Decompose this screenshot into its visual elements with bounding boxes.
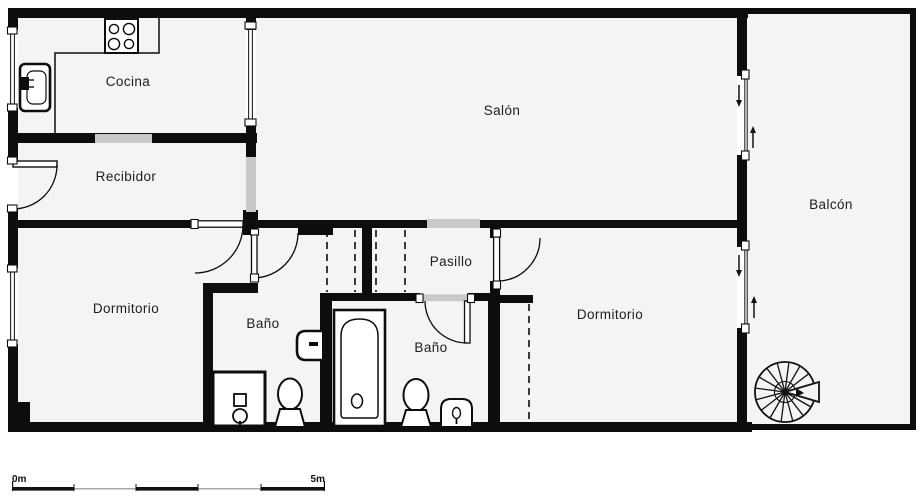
scale-start-label: 0m [12,474,27,485]
room-label-bano-1: Baño [246,316,279,331]
bedroom-right-door-leaf [494,237,500,282]
toilet-icon [401,379,431,427]
balcony-floor [745,8,916,430]
room-label-bano-2: Baño [414,340,447,355]
scale-bar: 0m 5m [12,474,325,491]
room-label-dormitorio-izq: Dormitorio [93,301,159,316]
bidet-icon [441,399,472,427]
room-label-recibidor: Recibidor [96,169,157,184]
cocina-recibidor-window [95,134,152,143]
room-label-balcon: Balcón [809,197,853,212]
bedroom-left-door-leaf [195,221,243,227]
stove-icon [105,19,138,53]
room-label-pasillo: Pasillo [430,254,473,269]
recibidor-salon-opening [246,157,256,212]
salon-pasillo-opening [427,219,480,228]
bathtub-icon [334,310,385,426]
shower-icon [213,372,265,426]
washbasin-icon [297,331,322,360]
room-label-salon: Salón [484,103,521,118]
bath2-door-leaf [465,301,471,343]
room-label-cocina: Cocina [106,74,151,89]
floor-plan-canvas: Cocina Recibidor Salón Balcón Dormitorio… [0,0,920,499]
bath1-door-leaf [252,233,258,278]
kitchen-sink-icon [20,64,50,111]
scale-end-label: 5m [311,474,326,485]
bath2-door-threshold [421,294,468,301]
floor-plan: Cocina Recibidor Salón Balcón Dormitorio… [0,0,920,499]
toilet-icon [275,379,305,428]
room-label-dormitorio-der: Dormitorio [577,307,643,322]
entry-door-leaf [13,161,57,167]
